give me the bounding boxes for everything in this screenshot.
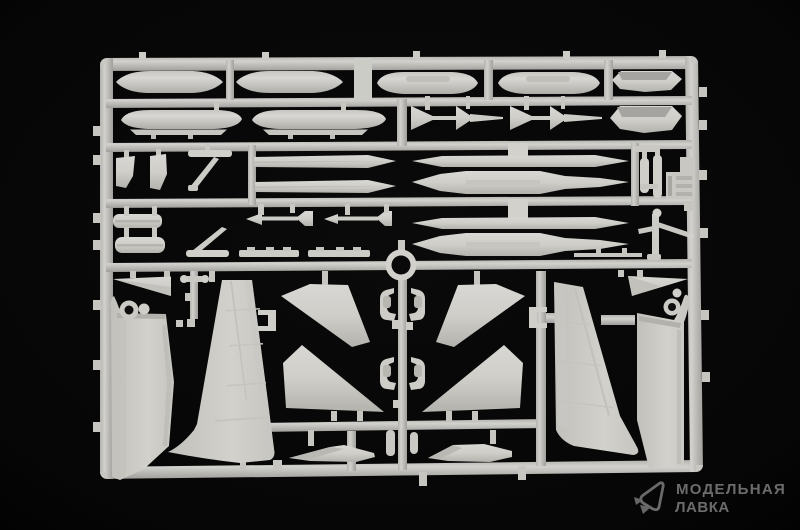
svg-text:ЛАВКА: ЛАВКА: [675, 499, 730, 516]
svg-text:МОДЕЛЬНАЯ: МОДЕЛЬНАЯ: [676, 481, 786, 498]
